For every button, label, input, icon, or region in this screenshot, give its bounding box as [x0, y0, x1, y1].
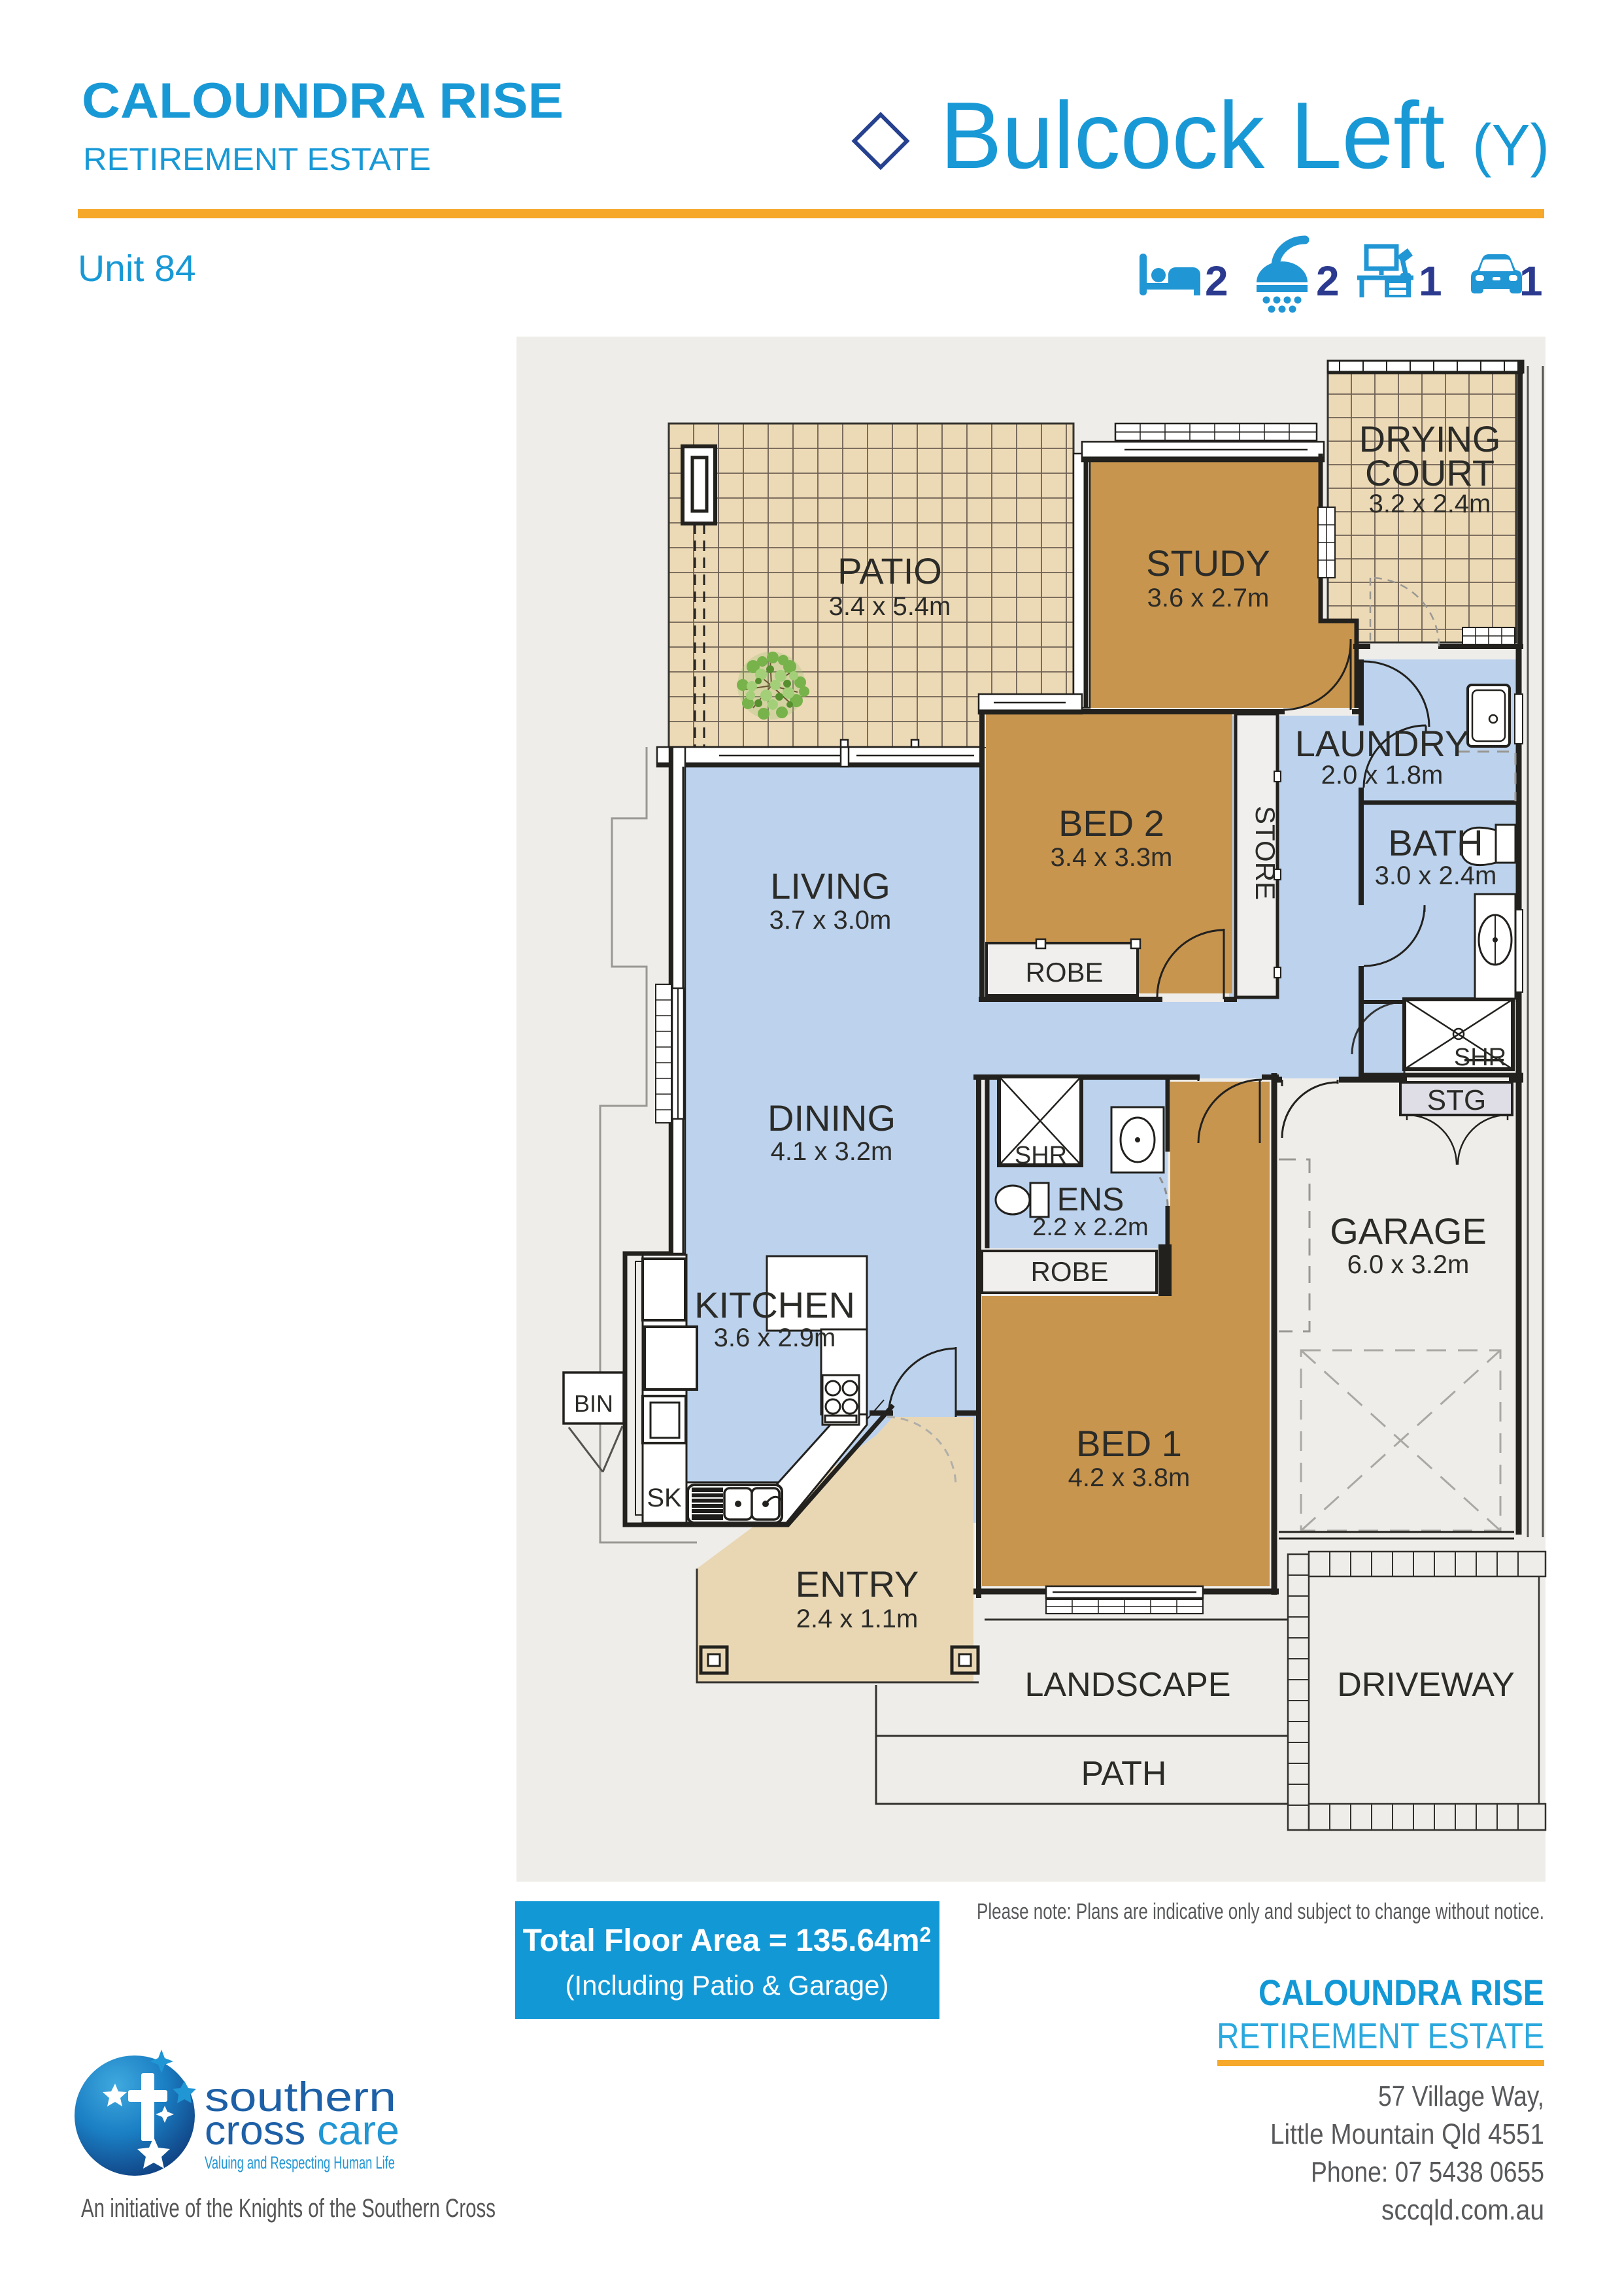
- svg-text:1: 1: [1519, 258, 1543, 305]
- svg-text:ROBE: ROBE: [1030, 1256, 1108, 1287]
- svg-text:4.1 x 3.2m: 4.1 x 3.2m: [771, 1137, 893, 1166]
- svg-text:ENS: ENS: [1057, 1181, 1124, 1218]
- svg-text:3.7 x 3.0m: 3.7 x 3.0m: [769, 906, 892, 935]
- svg-text:(Including Patio & Garage): (Including Patio & Garage): [566, 1970, 889, 2001]
- svg-text:cross care: cross care: [205, 2108, 399, 2154]
- svg-text:3.2 x 2.4m: 3.2 x 2.4m: [1369, 490, 1491, 518]
- svg-text:3.0 x 2.4m: 3.0 x 2.4m: [1375, 861, 1497, 890]
- svg-text:STG: STG: [1427, 1084, 1486, 1116]
- svg-text:1: 1: [1419, 258, 1442, 305]
- svg-text:3.4 x 3.3m: 3.4 x 3.3m: [1051, 843, 1173, 872]
- svg-text:BED 1: BED 1: [1076, 1423, 1182, 1464]
- svg-text:2: 2: [1316, 258, 1340, 305]
- svg-text:Bulcock Left: Bulcock Left: [940, 82, 1445, 188]
- svg-text:3.6 x 2.9m: 3.6 x 2.9m: [714, 1323, 836, 1352]
- svg-text:LAUNDRY: LAUNDRY: [1295, 723, 1470, 764]
- svg-text:PATIO: PATIO: [837, 550, 942, 591]
- svg-text:DINING: DINING: [768, 1097, 896, 1139]
- svg-text:4.2 x 3.8m: 4.2 x 3.8m: [1068, 1463, 1191, 1492]
- svg-text:(Y): (Y): [1472, 113, 1549, 178]
- svg-text:RETIREMENT ESTATE: RETIREMENT ESTATE: [83, 142, 431, 177]
- svg-text:ROBE: ROBE: [1025, 957, 1103, 988]
- svg-text:CALOUNDRA RISE: CALOUNDRA RISE: [1259, 1972, 1544, 2013]
- svg-text:STORE: STORE: [1250, 806, 1281, 900]
- svg-text:KITCHEN: KITCHEN: [694, 1284, 855, 1325]
- svg-text:57 Village Way,: 57 Village Way,: [1378, 2080, 1544, 2112]
- svg-text:STUDY: STUDY: [1146, 542, 1270, 584]
- svg-text:2.4 x 1.1m: 2.4 x 1.1m: [796, 1605, 919, 1633]
- svg-text:Valuing and Respecting Human L: Valuing and Respecting Human Life: [205, 2153, 395, 2172]
- svg-text:2.2 x 2.2m: 2.2 x 2.2m: [1032, 1214, 1148, 1241]
- svg-text:Phone: 07 5438 0655: Phone: 07 5438 0655: [1311, 2156, 1544, 2188]
- svg-text:PATH: PATH: [1081, 1755, 1167, 1793]
- svg-text:Please note: Plans are indicat: Please note: Plans are indicative only a…: [977, 1899, 1544, 1924]
- svg-text:An initiative of the Knights o: An initiative of the Knights of the Sout…: [81, 2194, 496, 2223]
- svg-text:CALOUNDRA RISE: CALOUNDRA RISE: [82, 73, 564, 129]
- svg-text:2: 2: [1205, 258, 1228, 305]
- svg-text:BIN: BIN: [574, 1390, 613, 1417]
- svg-text:GARAGE: GARAGE: [1330, 1210, 1487, 1252]
- svg-text:2.0 x 1.8m: 2.0 x 1.8m: [1321, 761, 1444, 790]
- svg-text:RETIREMENT ESTATE: RETIREMENT ESTATE: [1217, 2015, 1544, 2056]
- svg-text:3.4 x 5.4m: 3.4 x 5.4m: [829, 592, 951, 621]
- svg-text:BATH: BATH: [1388, 822, 1483, 863]
- svg-text:COURT: COURT: [1365, 452, 1495, 493]
- svg-text:BED 2: BED 2: [1058, 803, 1164, 844]
- svg-text:SHR: SHR: [1454, 1044, 1506, 1071]
- svg-text:Total Floor Area = 135.64m2: Total Floor Area = 135.64m2: [523, 1923, 932, 1958]
- svg-text:Little Mountain Qld 4551: Little Mountain Qld 4551: [1270, 2118, 1544, 2150]
- svg-text:ENTRY: ENTRY: [796, 1563, 919, 1605]
- svg-text:6.0 x 3.2m: 6.0 x 3.2m: [1347, 1250, 1470, 1279]
- svg-text:DRIVEWAY: DRIVEWAY: [1337, 1666, 1515, 1704]
- svg-text:LIVING: LIVING: [770, 865, 890, 907]
- svg-text:Unit 84: Unit 84: [78, 248, 196, 290]
- svg-text:SHR: SHR: [1015, 1142, 1067, 1169]
- svg-text:LANDSCAPE: LANDSCAPE: [1025, 1666, 1231, 1704]
- svg-text:sccqld.com.au: sccqld.com.au: [1381, 2194, 1544, 2226]
- svg-text:SK: SK: [647, 1484, 682, 1512]
- svg-text:3.6 x 2.7m: 3.6 x 2.7m: [1147, 584, 1270, 612]
